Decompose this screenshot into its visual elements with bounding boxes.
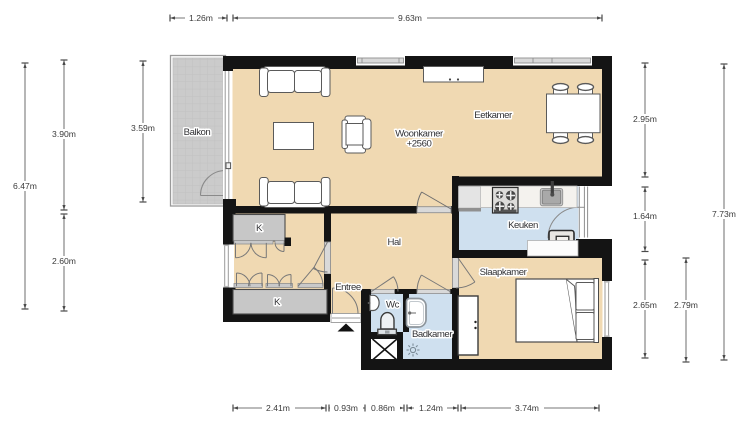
svg-text:9.63m: 9.63m <box>398 13 422 23</box>
svg-text:3.74m: 3.74m <box>515 403 539 413</box>
svg-text:1.64m: 1.64m <box>633 211 657 221</box>
svg-text:Keuken: Keuken <box>508 220 538 231</box>
svg-text:1.26m: 1.26m <box>189 13 213 23</box>
svg-text:Badkamer: Badkamer <box>412 329 453 340</box>
svg-text:K: K <box>274 297 281 308</box>
svg-text:2.95m: 2.95m <box>633 114 657 124</box>
svg-text:Slaapkamer: Slaapkamer <box>480 267 528 278</box>
svg-text:0.86m: 0.86m <box>371 403 395 413</box>
svg-text:2.41m: 2.41m <box>266 403 290 413</box>
svg-text:Hal: Hal <box>387 237 400 248</box>
svg-text:2.79m: 2.79m <box>674 300 698 310</box>
svg-text:3.90m: 3.90m <box>52 129 76 139</box>
svg-text:Wc: Wc <box>386 300 400 311</box>
svg-text:3.59m: 3.59m <box>131 123 155 133</box>
svg-text:2.60m: 2.60m <box>52 256 76 266</box>
svg-text:7.73m: 7.73m <box>712 209 736 219</box>
svg-text:Eetkamer: Eetkamer <box>474 110 513 121</box>
svg-text:K: K <box>256 223 263 234</box>
svg-text:Entree: Entree <box>335 282 361 293</box>
svg-text:+2560: +2560 <box>407 139 432 150</box>
svg-text:0.93m: 0.93m <box>334 403 358 413</box>
svg-text:Balkon: Balkon <box>184 127 211 138</box>
svg-text:2.65m: 2.65m <box>633 300 657 310</box>
svg-text:6.47m: 6.47m <box>13 181 37 191</box>
svg-text:1.24m: 1.24m <box>419 403 443 413</box>
